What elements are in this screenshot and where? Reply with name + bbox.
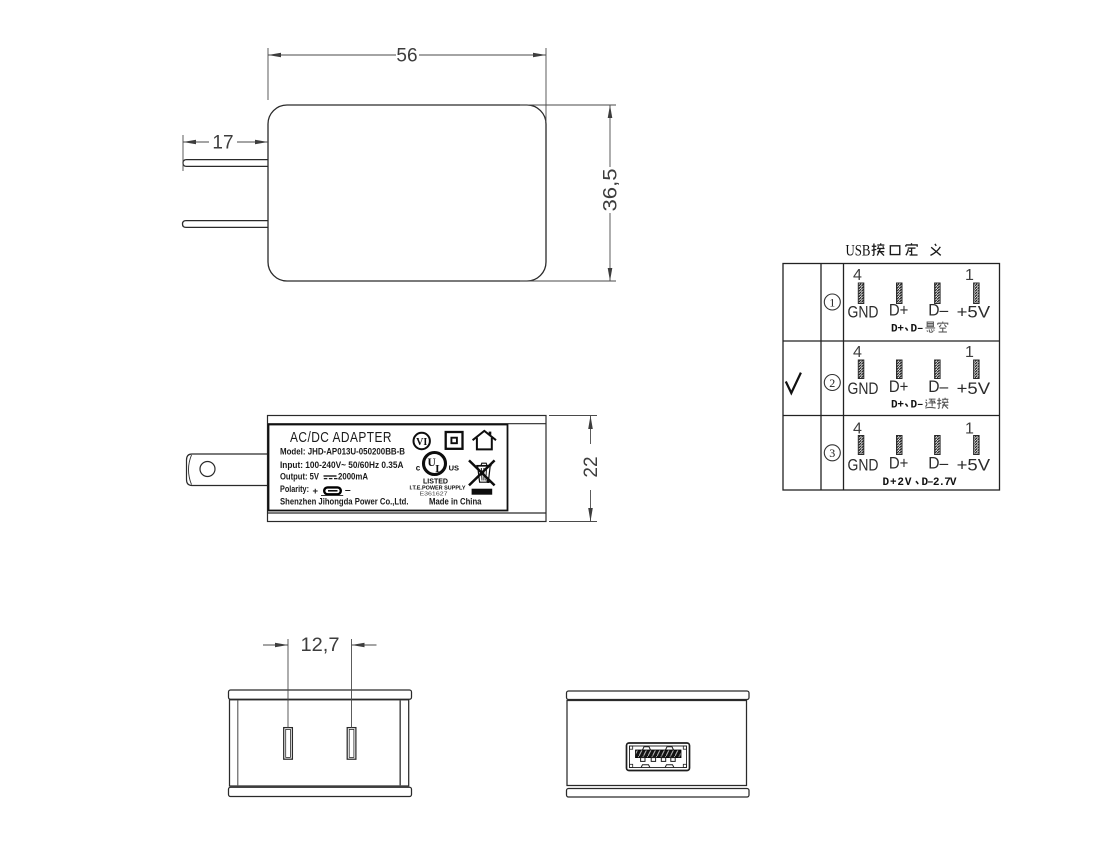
svg-text:D+: D+ [891,324,904,336]
svg-text:1: 1 [965,421,974,438]
svg-text:36,5: 36,5 [601,169,622,212]
svg-text:USB: USB [846,243,871,260]
svg-text:D+: D+ [889,454,909,473]
svg-text:GND: GND [848,303,879,322]
svg-text:GND: GND [848,456,879,475]
svg-text:Polarity:: Polarity: [280,484,309,494]
svg-text:D–: D– [928,454,948,473]
svg-text:1: 1 [965,267,974,284]
svg-text:Made in China: Made in China [429,497,482,507]
svg-text:+: + [313,486,319,497]
svg-text:GND: GND [848,379,879,398]
svg-text:E361627: E361627 [420,491,448,497]
svg-text:Output: 5V: Output: 5V [280,472,319,482]
svg-text:1: 1 [829,295,835,309]
svg-text:4: 4 [853,421,862,438]
svg-text:LISTED: LISTED [423,478,448,485]
svg-text:+5V: +5V [957,379,991,398]
svg-text:c: c [416,463,421,472]
svg-text:D–: D– [928,301,948,320]
svg-text:4: 4 [853,344,862,361]
svg-text:L: L [435,463,442,475]
svg-text:56: 56 [396,46,417,67]
svg-text:VI: VI [416,437,427,448]
svg-text:+5V: +5V [957,303,991,322]
svg-text:12,7: 12,7 [301,635,340,656]
svg-text:AC/DC ADAPTER: AC/DC ADAPTER [290,429,392,446]
svg-text:–: – [345,484,351,496]
svg-text:D–2.7V: D–2.7V [922,477,957,489]
svg-text:D–: D– [911,400,924,412]
svg-text:1: 1 [965,344,974,361]
svg-text:17: 17 [212,133,233,154]
svg-text:D+: D+ [889,377,909,396]
svg-text:Shenzhen Jihongda Power Co.,Lt: Shenzhen Jihongda Power Co.,Ltd. [280,497,409,507]
svg-text:2000mA: 2000mA [338,472,368,482]
svg-text:D–: D– [928,377,948,396]
svg-text:D+2V: D+2V [883,477,912,489]
svg-text:22: 22 [581,456,602,477]
svg-text:D+: D+ [889,301,909,320]
svg-text:3: 3 [829,446,835,460]
svg-text:US: US [449,463,459,472]
svg-text:D–: D– [911,324,924,336]
svg-text:D+: D+ [891,400,904,412]
svg-text:Input: 100-240V~ 50/60Hz 0.3: Input: 100-240V~ 50/60Hz 0.35A [280,460,404,470]
svg-text:+5V: +5V [957,456,991,475]
svg-text:2: 2 [829,376,835,390]
svg-text:4: 4 [853,267,862,284]
svg-text:Model: JHD-AP013U-050200BB-B: Model: JHD-AP013U-050200BB-B [280,447,405,457]
